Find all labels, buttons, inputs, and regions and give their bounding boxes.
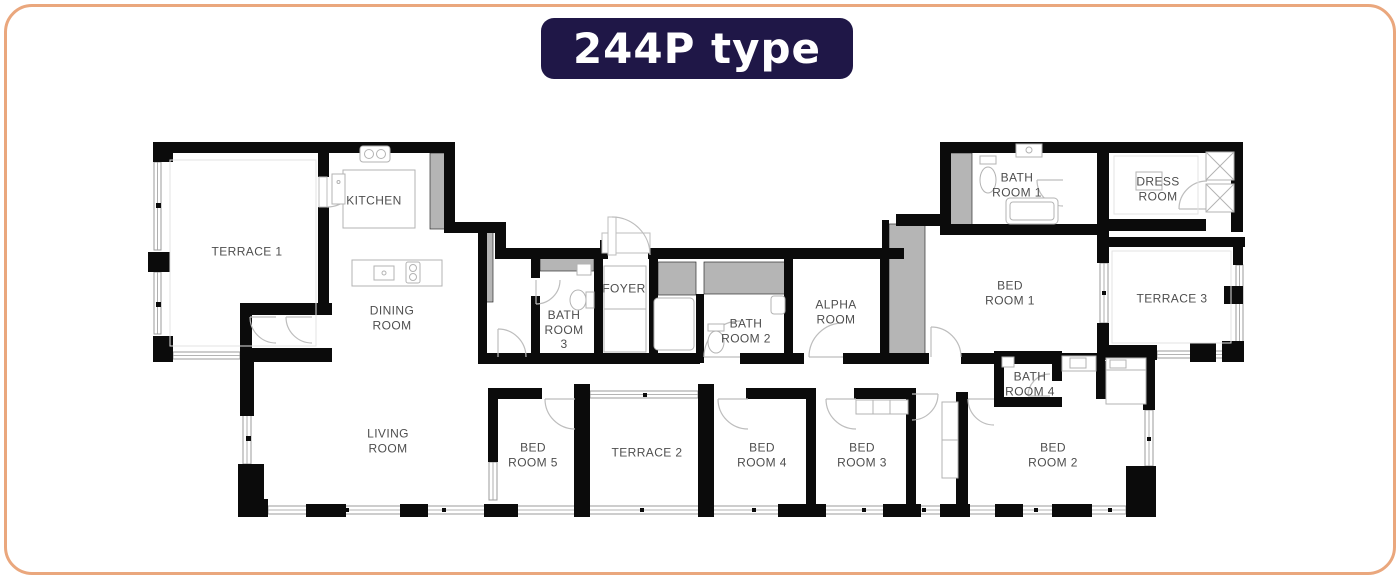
floor-plan-page: 244P type — [0, 0, 1400, 579]
room-label-foyer: FOYER — [602, 282, 645, 297]
room-label-kitchen: KITCHEN — [346, 194, 401, 209]
room-label-terrace-3: TERRACE 3 — [1137, 292, 1208, 307]
room-label-terrace-1: TERRACE 1 — [212, 245, 283, 260]
room-label-alpha-room: ALPHA ROOM — [815, 297, 856, 326]
walls — [148, 142, 1245, 517]
room-label-terrace-2: TERRACE 2 — [612, 446, 683, 461]
room-label-bath-room-1: BATH ROOM 1 — [992, 170, 1042, 199]
floor-plan-drawing — [0, 0, 1400, 579]
room-label-bed-room-4: BED ROOM 4 — [737, 440, 787, 469]
room-label-bed-room-5: BED ROOM 5 — [508, 440, 558, 469]
room-label-bath-room-4: BATH ROOM 4 — [1005, 369, 1055, 398]
room-label-bed-room-1: BED ROOM 1 — [985, 278, 1035, 307]
room-label-bath-room-2: BATH ROOM 2 — [721, 316, 771, 345]
room-label-living-room: LIVING ROOM — [367, 426, 409, 455]
room-label-bed-room-2: BED ROOM 2 — [1028, 440, 1078, 469]
room-label-bed-room-3: BED ROOM 3 — [837, 440, 887, 469]
room-label-bath-room-3: BATH ROOM 3 — [545, 308, 584, 352]
room-label-dress-room: DRESS ROOM — [1136, 174, 1179, 203]
room-label-dining-room: DINING ROOM — [370, 303, 414, 332]
